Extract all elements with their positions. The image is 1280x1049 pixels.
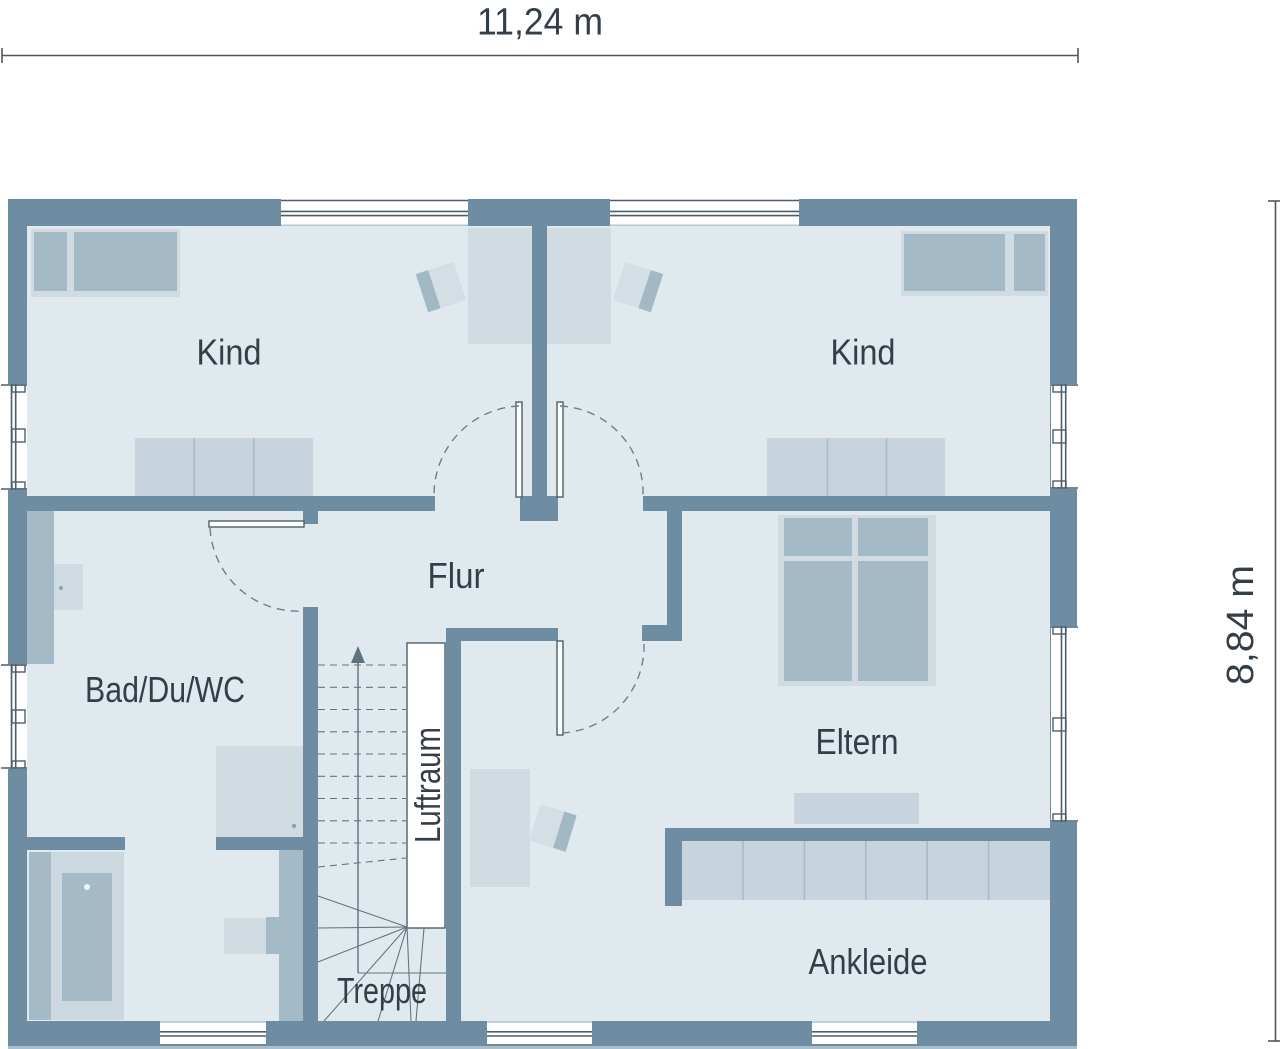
svg-text:Eltern: Eltern [816, 721, 899, 762]
svg-text:Bad/Du/WC: Bad/Du/WC [85, 669, 245, 710]
svg-text:Kind: Kind [197, 332, 262, 373]
svg-text:Flur: Flur [428, 555, 485, 596]
svg-text:Kind: Kind [831, 332, 896, 373]
svg-text:8,84 m: 8,84 m [1220, 565, 1262, 685]
svg-text:11,24 m: 11,24 m [477, 2, 603, 44]
svg-text:Ankleide: Ankleide [809, 941, 928, 982]
svg-text:Luftraum: Luftraum [407, 727, 448, 843]
svg-text:Treppe: Treppe [337, 970, 427, 1011]
